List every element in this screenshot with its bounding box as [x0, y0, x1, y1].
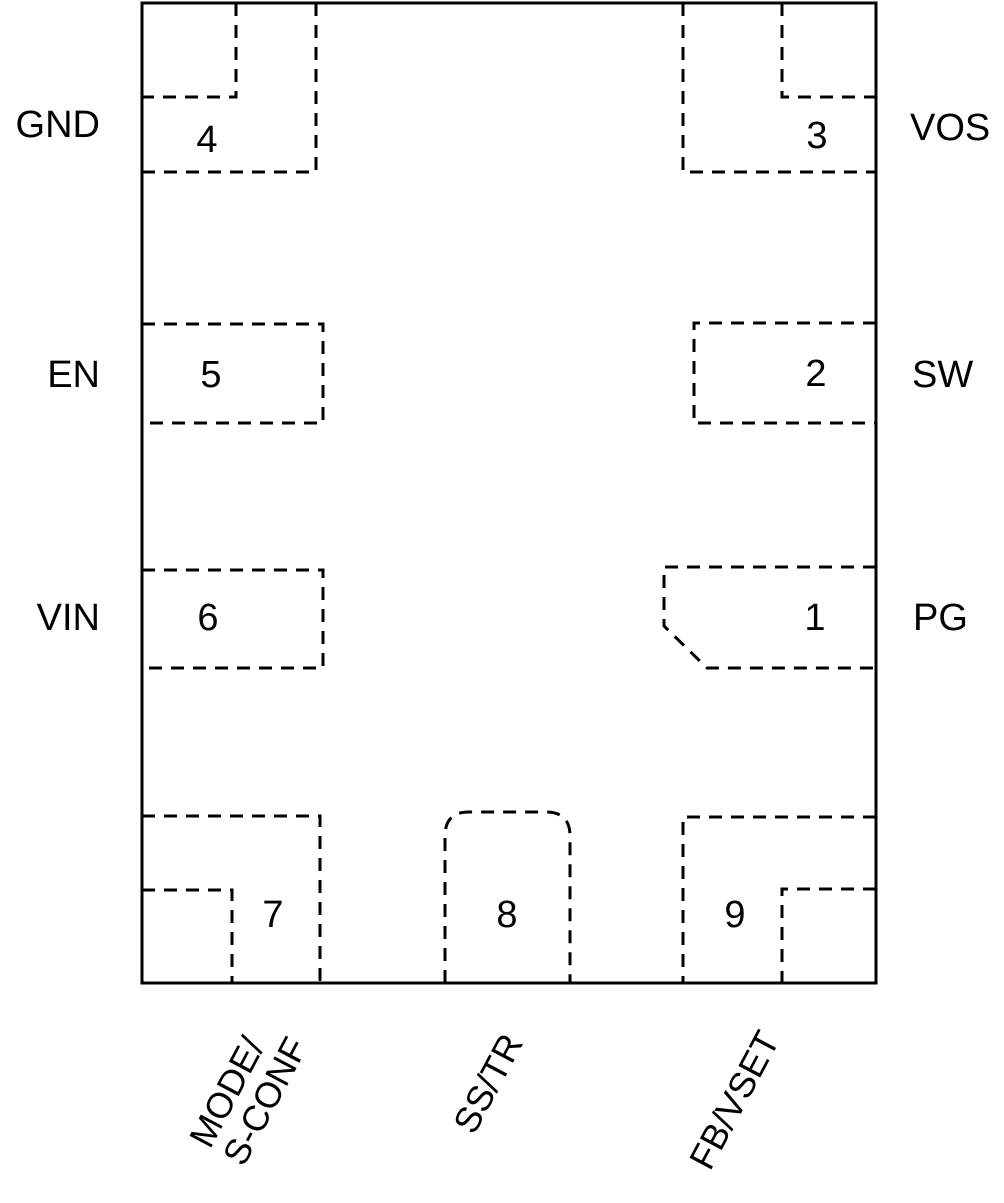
pin-1-pad — [664, 567, 876, 668]
pinout-figure: 4 3 5 2 6 1 7 8 9 GND EN VIN VOS SW PG M… — [0, 0, 1004, 1203]
pin-2-number: 2 — [805, 353, 826, 395]
pin-4-pad — [142, 3, 316, 172]
pin-name-vin: VIN — [37, 597, 100, 639]
package-outline — [142, 3, 876, 983]
pinout-canvas: 4 3 5 2 6 1 7 8 9 GND EN VIN VOS SW PG M… — [0, 0, 1004, 1203]
pin-name-pg: PG — [913, 597, 968, 639]
pin-name-gnd: GND — [16, 104, 100, 146]
pin-7-pad — [142, 816, 320, 983]
pin-8-number: 8 — [496, 894, 517, 936]
pin-6-number: 6 — [197, 597, 218, 639]
pin-name-mode-sconf: MODE/ S-CONF — [181, 1013, 316, 1172]
pin-1-number: 1 — [804, 597, 825, 639]
pin-7-number: 7 — [262, 894, 283, 936]
pin-4-number: 4 — [196, 119, 217, 161]
pin-5-number: 5 — [200, 354, 221, 396]
pin-name-en: EN — [47, 354, 100, 396]
pin-3-pad — [683, 3, 876, 172]
pin-6-pad — [142, 570, 323, 668]
pin-9-pad — [683, 817, 876, 983]
pin-2-pad — [694, 323, 876, 423]
pin-name-fbvset: FB/VSET — [681, 1024, 788, 1176]
pin-name-sw: SW — [912, 354, 973, 396]
pin-9-number: 9 — [724, 894, 745, 936]
pin-5-pad — [142, 324, 323, 423]
pin-name-sstr: SS/TR — [445, 1027, 531, 1140]
pin-3-number: 3 — [806, 115, 827, 157]
pin-name-vos: VOS — [910, 107, 990, 149]
